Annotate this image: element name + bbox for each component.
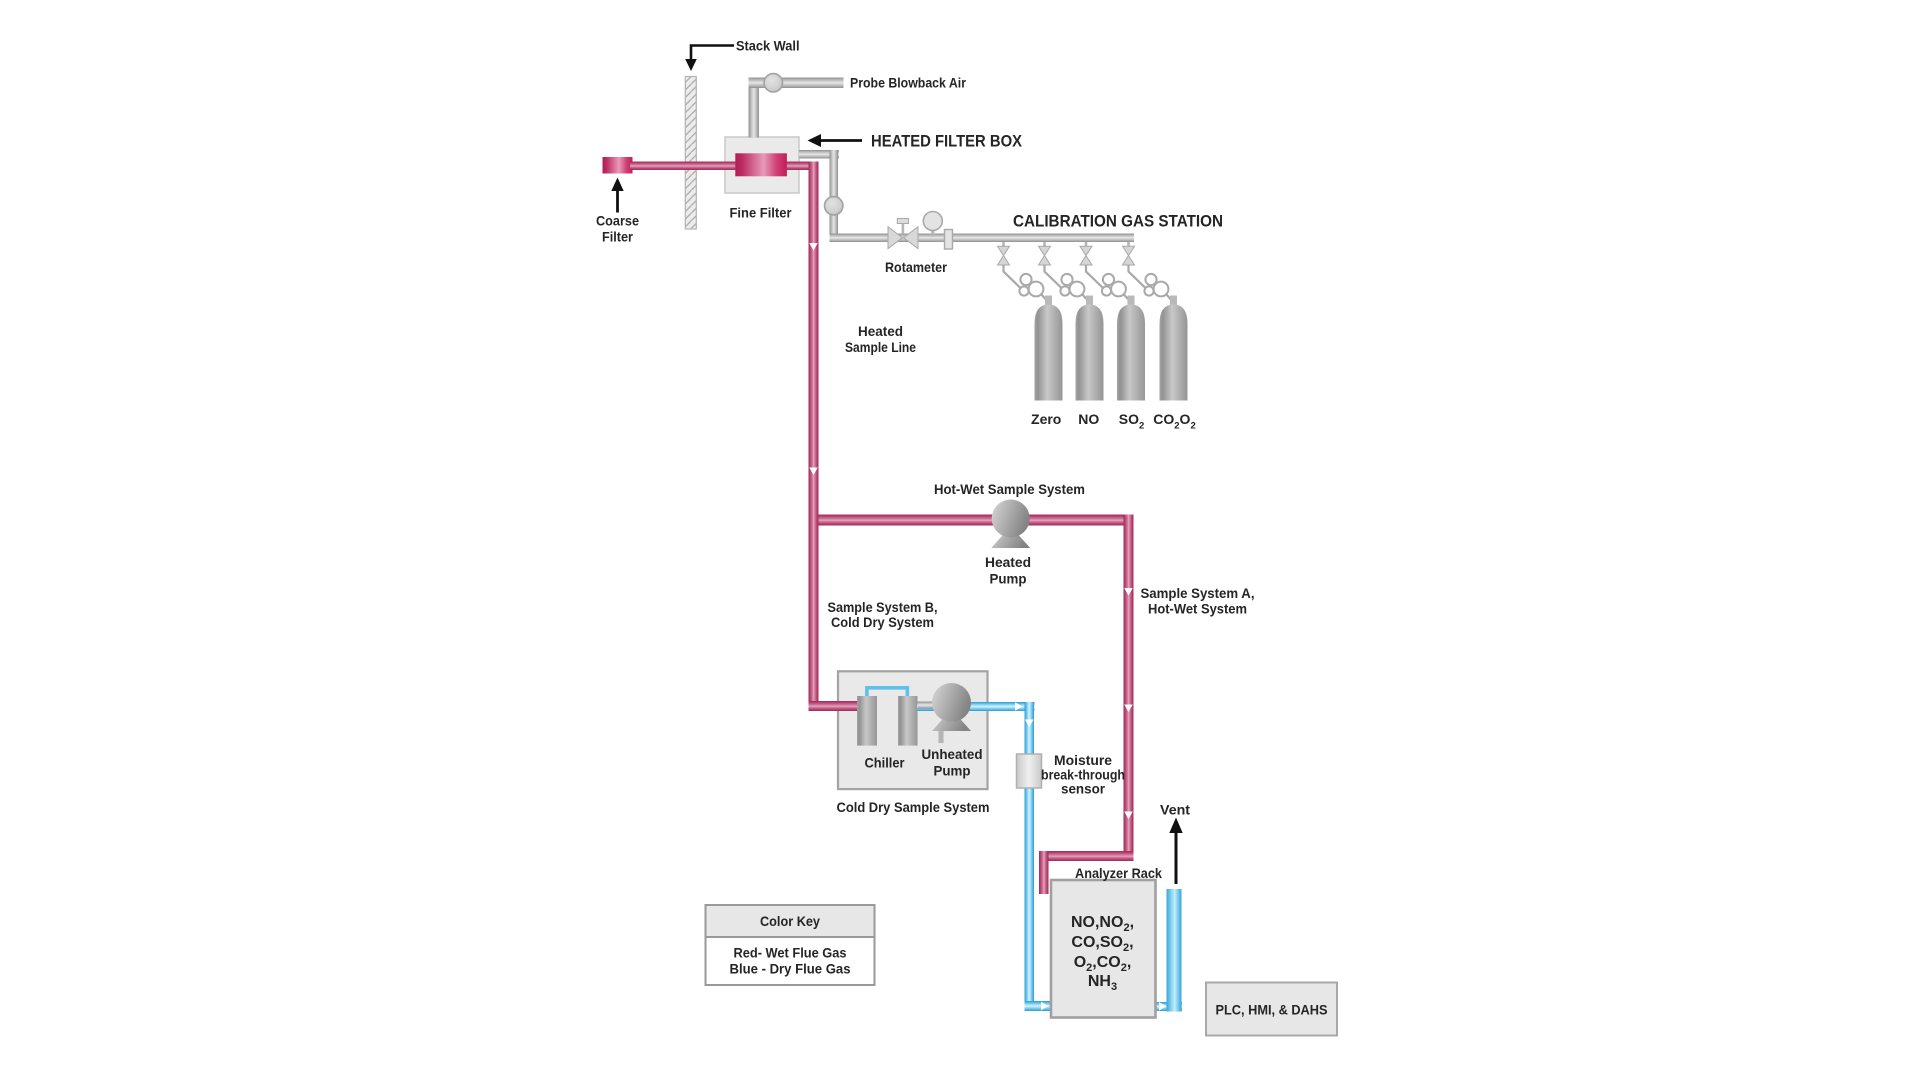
svg-text:Pump: Pump bbox=[990, 571, 1027, 587]
svg-text:NO: NO bbox=[1078, 411, 1099, 427]
svg-text:Cold Dry System: Cold Dry System bbox=[831, 614, 934, 630]
svg-text:PLC, HMI, & DAHS: PLC, HMI, & DAHS bbox=[1216, 1002, 1328, 1018]
svg-text:Filter: Filter bbox=[602, 229, 633, 245]
svg-text:Fine Filter: Fine Filter bbox=[730, 205, 793, 221]
svg-text:Blue - Dry Flue Gas: Blue - Dry Flue Gas bbox=[730, 961, 851, 977]
svg-text:Analyzer Rack: Analyzer Rack bbox=[1075, 865, 1162, 881]
svg-text:sensor: sensor bbox=[1061, 781, 1106, 797]
svg-text:Chiller: Chiller bbox=[865, 755, 905, 771]
svg-text:Coarse: Coarse bbox=[596, 213, 639, 229]
svg-text:Color Key: Color Key bbox=[760, 913, 820, 929]
svg-text:Vent: Vent bbox=[1160, 802, 1190, 818]
svg-text:Cold Dry Sample System: Cold Dry Sample System bbox=[837, 799, 990, 815]
svg-text:Red- Wet Flue Gas: Red- Wet Flue Gas bbox=[734, 945, 847, 961]
svg-text:Hot-Wet Sample System: Hot-Wet Sample System bbox=[934, 481, 1085, 497]
svg-text:Heated: Heated bbox=[858, 323, 903, 339]
svg-text:Hot-Wet System: Hot-Wet System bbox=[1148, 601, 1247, 617]
svg-text:Zero: Zero bbox=[1031, 411, 1061, 427]
svg-text:Unheated: Unheated bbox=[922, 746, 983, 762]
svg-text:Sample Line: Sample Line bbox=[845, 339, 916, 355]
svg-text:CALIBRATION GAS STATION: CALIBRATION GAS STATION bbox=[1013, 212, 1223, 231]
svg-text:Sample System A,: Sample System A, bbox=[1141, 585, 1255, 601]
svg-text:Rotameter: Rotameter bbox=[885, 259, 947, 275]
svg-text:Sample System B,: Sample System B, bbox=[828, 599, 938, 615]
svg-text:Pump: Pump bbox=[934, 763, 971, 779]
svg-text:Stack Wall: Stack Wall bbox=[736, 38, 800, 54]
svg-text:HEATED FILTER BOX: HEATED FILTER BOX bbox=[871, 133, 1022, 151]
svg-text:Heated: Heated bbox=[985, 554, 1031, 570]
svg-text:Probe Blowback Air: Probe Blowback Air bbox=[850, 75, 966, 91]
